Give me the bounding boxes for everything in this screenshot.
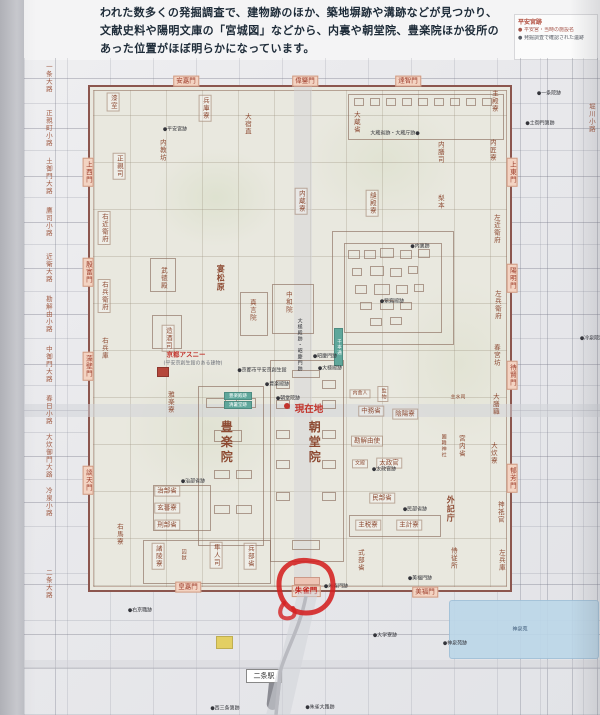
site-annotation: ●一条院跡 (537, 91, 561, 96)
street-label: 鷹司小路 (45, 207, 52, 237)
building-label: 隼人司 (210, 542, 223, 569)
building-label: 真言院 (249, 299, 256, 322)
building-label: 治部省 (154, 486, 180, 497)
building-label: 玄蕃寮 (154, 503, 180, 514)
site-annotation: ●美福門跡 (408, 576, 432, 581)
site-annotation: ●西三条第跡 (210, 706, 239, 711)
gate-label: 陽明門 (507, 264, 518, 293)
building-footprint (414, 284, 424, 292)
site-annotation: ●朝堂院跡 (276, 396, 300, 401)
building-label: 造酒司 (162, 325, 175, 352)
building-footprint (418, 249, 430, 258)
building-footprint (390, 317, 402, 325)
building-label: 主殿寮 (491, 90, 498, 113)
building-label: 右近衛府 (98, 211, 111, 245)
building-label: 監物 (377, 386, 388, 402)
photo-left-edge (0, 0, 24, 715)
modern-building (216, 636, 233, 649)
intro-line-1: われた数多くの発掘調査で、建物跡のほか、築地塀跡や溝跡などが見つかり、 (100, 4, 510, 22)
building-footprint (400, 250, 412, 259)
building-label: 縫殿寮 (366, 190, 379, 217)
gate-label: 藻壁門 (83, 352, 94, 381)
street-label: 堀川小路 (588, 103, 595, 133)
building-label: 囚獄 (180, 549, 185, 561)
building-label: 大宿直 (244, 113, 251, 136)
building-footprint (466, 98, 476, 106)
site-annotation: ●昭慶門跡 (313, 354, 337, 359)
site-annotation: ●朱雀門跡 (324, 584, 348, 589)
building-label: 式部省 (357, 549, 364, 572)
street-label: 土御門大路 (45, 157, 52, 195)
building-label: 陰陽寮 (392, 409, 418, 420)
building-label: 主水司 (450, 395, 465, 400)
site-annotation: ●紫宸殿跡 (380, 299, 404, 304)
street-line (55, 58, 56, 715)
nijo-station-label: 二条駅 (246, 669, 282, 683)
building-footprint (276, 492, 290, 501)
building-footprint (236, 505, 252, 514)
site-annotation: ●大極殿跡 (318, 366, 342, 371)
building-footprint (370, 318, 382, 326)
building-label: 大炊寮 (490, 442, 497, 465)
building-footprint (352, 268, 362, 276)
building-footprint (355, 285, 367, 294)
building-footprint (434, 98, 444, 106)
building-footprint (390, 268, 402, 277)
building-label: 宴松原 (216, 265, 224, 292)
building-label: 梨本 (437, 195, 444, 210)
building-footprint (276, 460, 290, 469)
site-annotation: ●平安宮跡 (163, 127, 187, 132)
site-annotation: 大極殿跡・昭慶門跡 (296, 318, 301, 372)
building-label: 右兵衛府 (98, 279, 111, 313)
street-label: 中御門大路 (45, 345, 52, 383)
building-footprint (396, 285, 408, 294)
gate-label: 朱雀門 (292, 585, 321, 597)
site-annotation: ●豊楽殿跡 (265, 382, 289, 387)
building-footprint (374, 284, 390, 295)
street-label: 大炊御門大路 (45, 434, 52, 479)
building-footprint (322, 460, 336, 469)
building-label: 兵部省 (244, 543, 257, 570)
site-annotation: ●内裏跡 (410, 244, 429, 249)
building-footprint (380, 248, 394, 258)
building-label: 園韓神社 (440, 434, 445, 458)
street-label: 正親町小路 (45, 109, 52, 147)
site-annotation: ●民部省跡 (403, 507, 427, 512)
building-footprint (354, 98, 364, 106)
current-location-dot (284, 403, 290, 409)
building-label: 主税寮 (355, 520, 381, 531)
building-label: 右馬寮 (116, 523, 123, 546)
site-annotation: ●大学寮跡 (373, 633, 397, 638)
gate-label: 上西門 (83, 158, 94, 187)
building-label: 内教坊 (159, 139, 166, 162)
building-footprint (322, 400, 336, 409)
site-annotation: ●冷泉院跡 (580, 336, 600, 341)
gate-label: 偉鑒門 (292, 76, 318, 87)
gate-label: 達智門 (395, 76, 421, 87)
street-sign-tag: 清暑堂跡 (224, 401, 252, 409)
building-footprint (276, 430, 290, 439)
building-footprint (322, 380, 336, 389)
building-label: 民部省 (369, 493, 395, 504)
building-label: 漆室 (107, 93, 120, 112)
compound-outline (272, 284, 314, 334)
building-footprint (214, 505, 230, 514)
oike-street-band (24, 660, 600, 669)
building-label: 文殿 (352, 459, 368, 468)
building-label: 朝堂院 (308, 421, 321, 466)
pond-label: 神泉苑 (512, 627, 527, 632)
street-sign-tag: 豊楽殿跡 (224, 392, 252, 400)
building-label: 雅楽寮 (167, 391, 174, 414)
building-footprint (408, 266, 418, 274)
legend-box: 平安宮跡 ● 平安宮・当時の施設名 ● 発掘調査で確認された遺跡 (514, 14, 598, 60)
building-label: 兵庫寮 (199, 95, 212, 122)
gate-label: 殷富門 (83, 258, 94, 287)
building-footprint (402, 98, 412, 106)
site-annotation: ●治部省跡 (181, 479, 205, 484)
building-footprint (370, 266, 384, 276)
site-annotation: ●神泉苑跡 (443, 641, 467, 646)
building-label: 大膳職 (492, 393, 499, 416)
building-footprint (418, 98, 428, 106)
building-label: 勘解由使 (351, 436, 383, 447)
building-label: 正親司 (113, 153, 126, 180)
gate-label: 上東門 (507, 158, 518, 187)
building-footprint (450, 98, 460, 106)
street-label: 近衛大路 (45, 253, 52, 283)
site-annotation: ●土御門第跡 (525, 121, 554, 126)
building-label: 内蔵寮 (295, 188, 308, 215)
suzakumon-gate-platform (294, 577, 320, 585)
building-label: 神祇官 (497, 501, 504, 524)
site-annotation: ●右京職跡 (128, 608, 152, 613)
building-label: 宮内省 (458, 435, 465, 458)
gate-label: 安嘉門 (173, 76, 199, 87)
building-label: 春宮坊 (493, 344, 500, 367)
site-annotation: ●太政官跡 (372, 467, 396, 472)
street-label: 冷泉小路 (45, 487, 52, 517)
building-label: 諸陵寮 (152, 543, 165, 570)
building-label: 中和院 (285, 291, 292, 314)
building-label: 内舎人 (349, 389, 370, 398)
street-sign-tag: 千本通 (334, 328, 343, 366)
building-label: 内膳司 (437, 141, 444, 164)
building-footprint (292, 540, 320, 550)
site-annotation: ●朱雀大路跡 (305, 705, 334, 710)
building-label: (平安京創生館のある建物) (164, 361, 223, 366)
building-label: 武徳殿 (160, 267, 167, 290)
site-annotation: ●京都市平安京創生館 (237, 368, 286, 373)
building-label: 外記庁 (446, 496, 454, 523)
kyoto-asny-building (157, 367, 169, 377)
gate-label: 待賢門 (507, 361, 518, 390)
building-label: 右兵庫 (101, 337, 108, 360)
building-label: 侍従所 (450, 547, 457, 570)
intro-line-2: 文献史料や陽明文庫の「宮城図」などから、内裏や朝堂院、豊楽院ほか役所の (100, 22, 510, 40)
gate-label: 皇嘉門 (175, 582, 201, 593)
building-footprint (214, 470, 230, 479)
building-label: 左兵庫 (498, 549, 505, 572)
building-label: 豊楽院 (220, 421, 233, 466)
site-annotation: 大蔵省跡・大蔵庁跡● (370, 131, 419, 136)
building-footprint (370, 98, 380, 106)
intro-line-3: あった位置がほぼ明らかになっています。 (100, 40, 510, 58)
building-label: 大蔵省 (353, 111, 360, 134)
building-footprint (322, 430, 336, 439)
current-location-label: 現在地 (295, 405, 324, 415)
building-label: 中務省 (358, 406, 384, 417)
building-footprint (236, 470, 252, 479)
building-footprint (364, 250, 376, 259)
building-footprint (348, 250, 360, 259)
building-label: 左兵衛府 (494, 290, 501, 320)
building-label: 左近衛府 (493, 214, 500, 244)
street-label: 春日小路 (45, 395, 52, 425)
building-footprint (386, 98, 396, 106)
gate-label: 郁芳門 (507, 464, 518, 493)
street-label: 二条大路 (45, 569, 52, 599)
street-label: 勘解由小路 (45, 295, 52, 333)
legend-item-1: ● 平安宮・当時の施設名 (518, 27, 594, 35)
gate-label: 美福門 (412, 587, 438, 598)
building-footprint (206, 398, 226, 408)
intro-paragraph: われた数多くの発掘調査で、建物跡のほか、築地塀跡や溝跡などが見つかり、 文献史料… (100, 4, 510, 58)
building-label: 内匠寮 (489, 139, 496, 162)
building-label: 主計寮 (396, 520, 422, 531)
legend-title: 平安宮跡 (518, 17, 594, 26)
building-footprint (322, 492, 336, 501)
building-footprint (360, 302, 372, 310)
building-label: 刑部省 (154, 520, 180, 531)
street-label: 一条大路 (45, 63, 52, 93)
photo-of-map-board: われた数多くの発掘調査で、建物跡のほか、築地塀跡や溝跡などが見つかり、 文献史料… (0, 0, 600, 715)
building-label: 京都アスニー (167, 352, 206, 359)
gate-label: 談天門 (83, 466, 94, 495)
legend-item-2: ● 発掘調査で確認された遺跡 (518, 35, 594, 43)
